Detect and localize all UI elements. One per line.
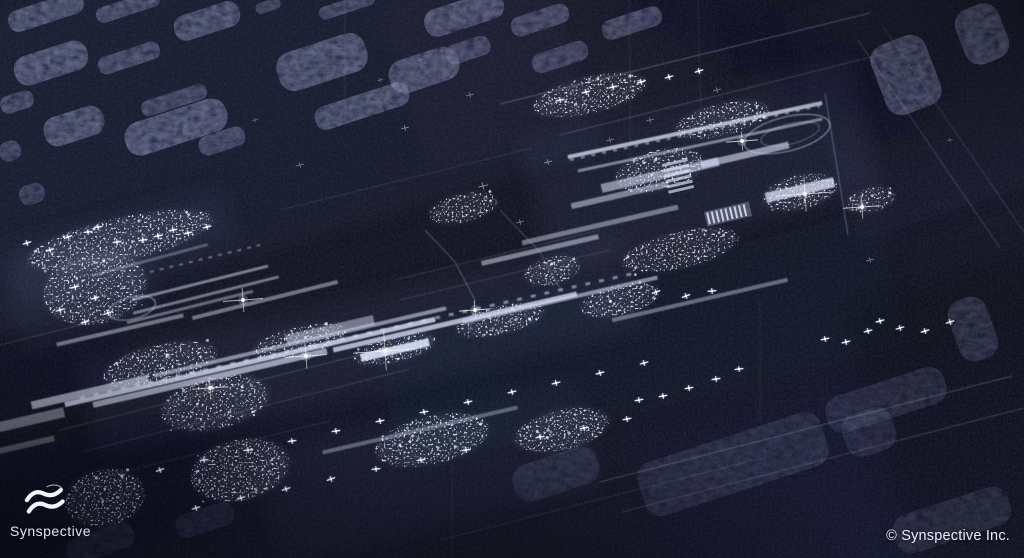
copyright-notice: © Synspective Inc. xyxy=(886,528,1010,544)
sar-scene-svg xyxy=(0,0,1024,558)
speckle-grain-coarse xyxy=(0,0,1024,558)
sar-airport-image: Synspective © Synspective Inc. xyxy=(0,0,1024,558)
logo-wordmark: Synspective xyxy=(10,523,150,539)
synspective-logo: Synspective xyxy=(10,482,150,539)
synspective-s-icon xyxy=(24,482,66,522)
